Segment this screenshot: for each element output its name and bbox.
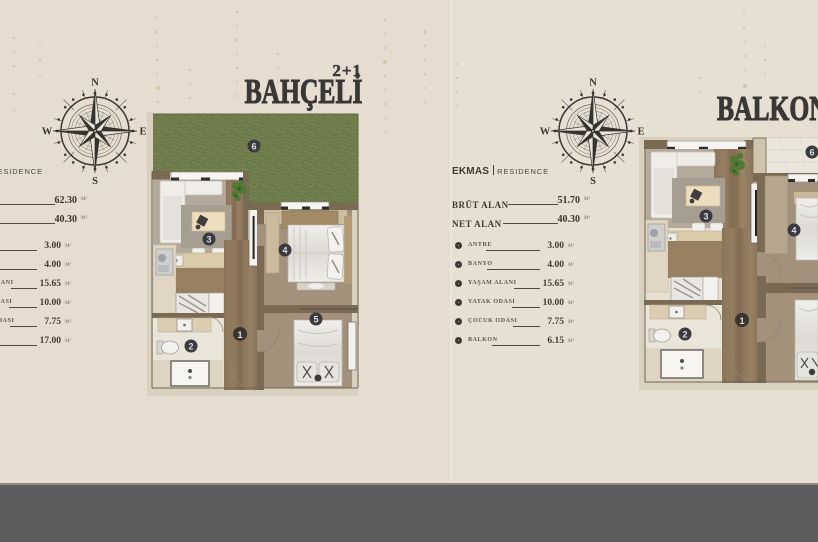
- svg-text:3: 3: [703, 212, 708, 222]
- svg-text:5: 5: [313, 315, 318, 325]
- svg-text:2: 2: [188, 342, 193, 352]
- svg-text:6: 6: [251, 142, 256, 152]
- svg-text:2: 2: [682, 330, 687, 340]
- svg-text:1: 1: [237, 330, 243, 341]
- svg-text:3: 3: [206, 235, 211, 245]
- svg-text:1: 1: [739, 316, 745, 327]
- svg-text:6: 6: [809, 148, 814, 158]
- svg-text:4: 4: [282, 246, 287, 256]
- svg-text:4: 4: [791, 226, 796, 236]
